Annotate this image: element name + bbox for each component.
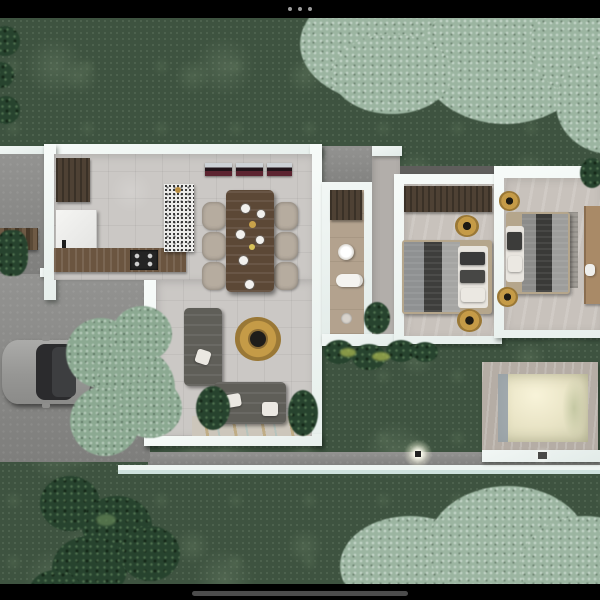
- bottom-bar: [0, 584, 600, 600]
- garden-shrub: [412, 342, 438, 362]
- bedside-lamp: [457, 309, 482, 332]
- sofa-pillow: [262, 402, 278, 416]
- bedside-lamp: [499, 191, 520, 211]
- home-indicator[interactable]: [192, 591, 408, 596]
- device-screen: [0, 0, 600, 600]
- rear-walkway-edge: [118, 465, 600, 474]
- stove: [130, 250, 158, 270]
- bathroom-vanity: [330, 190, 362, 220]
- garden-shrub-highlight: [372, 352, 390, 361]
- dining-chair: [274, 202, 298, 230]
- bedroom1-pillow-white: [461, 288, 485, 302]
- kitchen-upper-cabinet: [56, 158, 90, 202]
- dining-chair: [202, 262, 226, 290]
- floorplan-render[interactable]: [0, 18, 600, 584]
- hallway-plant: [364, 302, 390, 334]
- bedroom2-plant: [580, 158, 600, 188]
- plate: [257, 210, 265, 218]
- plate: [236, 230, 245, 239]
- bedroom1-wardrobe: [404, 186, 492, 212]
- dining-chair: [274, 232, 298, 260]
- dining-chair: [202, 232, 226, 260]
- plate: [239, 256, 248, 265]
- hallway-north-wall: [372, 146, 402, 156]
- dining-table: [226, 190, 274, 292]
- pool-inner-wall: [498, 374, 508, 442]
- car-mirror: [42, 403, 50, 408]
- dining-chair: [274, 262, 298, 290]
- food-bowl: [249, 221, 256, 228]
- garden-shrub-highlight: [340, 348, 356, 357]
- bedroom1-pillow-dark: [460, 270, 485, 283]
- island-faucet: [175, 187, 181, 193]
- plate: [256, 236, 264, 244]
- plate: [245, 280, 254, 289]
- shower-drain: [341, 313, 352, 324]
- pool-step: [538, 452, 547, 459]
- top-bar: [0, 0, 600, 18]
- ellipsis-menu-icon[interactable]: [0, 0, 600, 18]
- bedroom2-pillow-dark: [507, 232, 522, 250]
- bedside-lamp: [455, 215, 479, 237]
- food-bowl: [249, 244, 255, 250]
- bedroom2-desk: [584, 206, 600, 304]
- bathroom-sink: [338, 244, 354, 260]
- living-plant: [288, 390, 318, 436]
- living-plant: [196, 386, 230, 430]
- media-console-item: [267, 163, 292, 176]
- bedside-lamp: [497, 287, 518, 307]
- pool-algae-edge: [562, 378, 586, 438]
- bedroom1-blanket: [404, 242, 460, 312]
- toilet: [336, 274, 363, 287]
- desk-chair: [585, 264, 595, 276]
- plate: [241, 204, 250, 213]
- sofa-chaise: [184, 308, 222, 386]
- bedroom2-blanket: [522, 214, 568, 292]
- car-mirror: [42, 336, 50, 341]
- bedroom1-pillow-dark: [460, 252, 485, 265]
- planter-plants: [0, 230, 28, 276]
- bedroom2-pillow-white: [508, 256, 522, 272]
- coffee-table-top: [250, 331, 266, 347]
- media-console-item: [236, 163, 263, 176]
- media-console-item: [205, 163, 232, 176]
- kitchen-island: [164, 184, 194, 252]
- path-light: [415, 451, 421, 457]
- dining-chair: [202, 202, 226, 230]
